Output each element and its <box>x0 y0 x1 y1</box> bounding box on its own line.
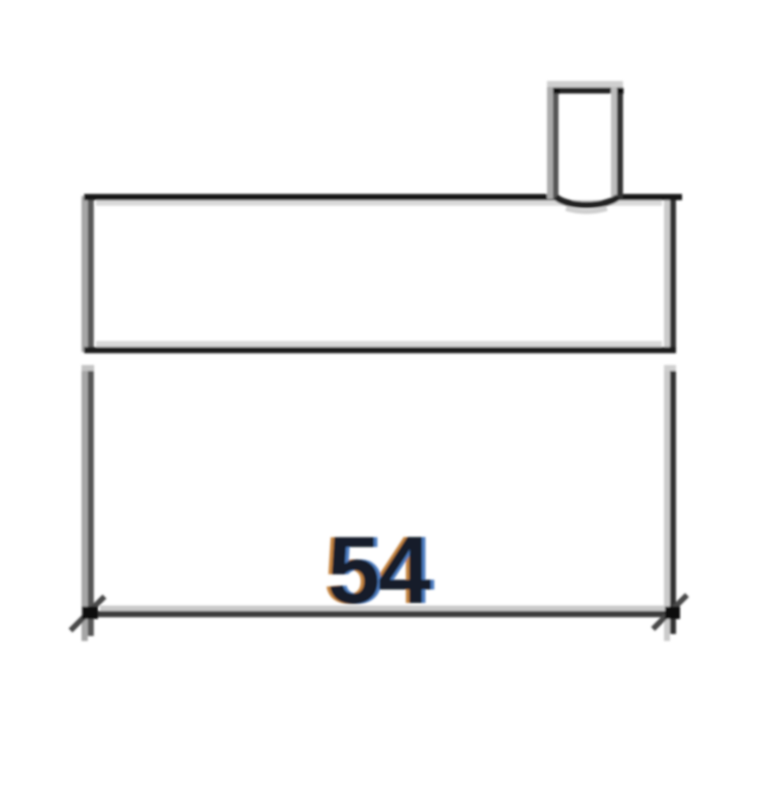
svg-text:54: 54 <box>327 517 431 624</box>
